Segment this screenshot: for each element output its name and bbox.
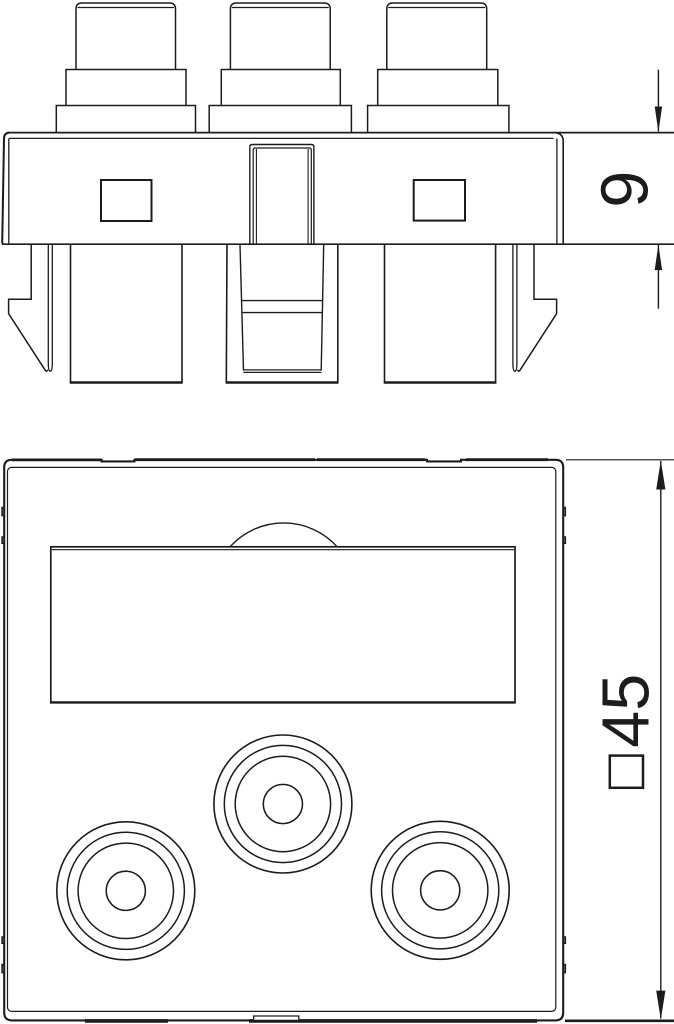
svg-text:45: 45	[590, 674, 664, 748]
svg-text:9: 9	[588, 171, 662, 208]
